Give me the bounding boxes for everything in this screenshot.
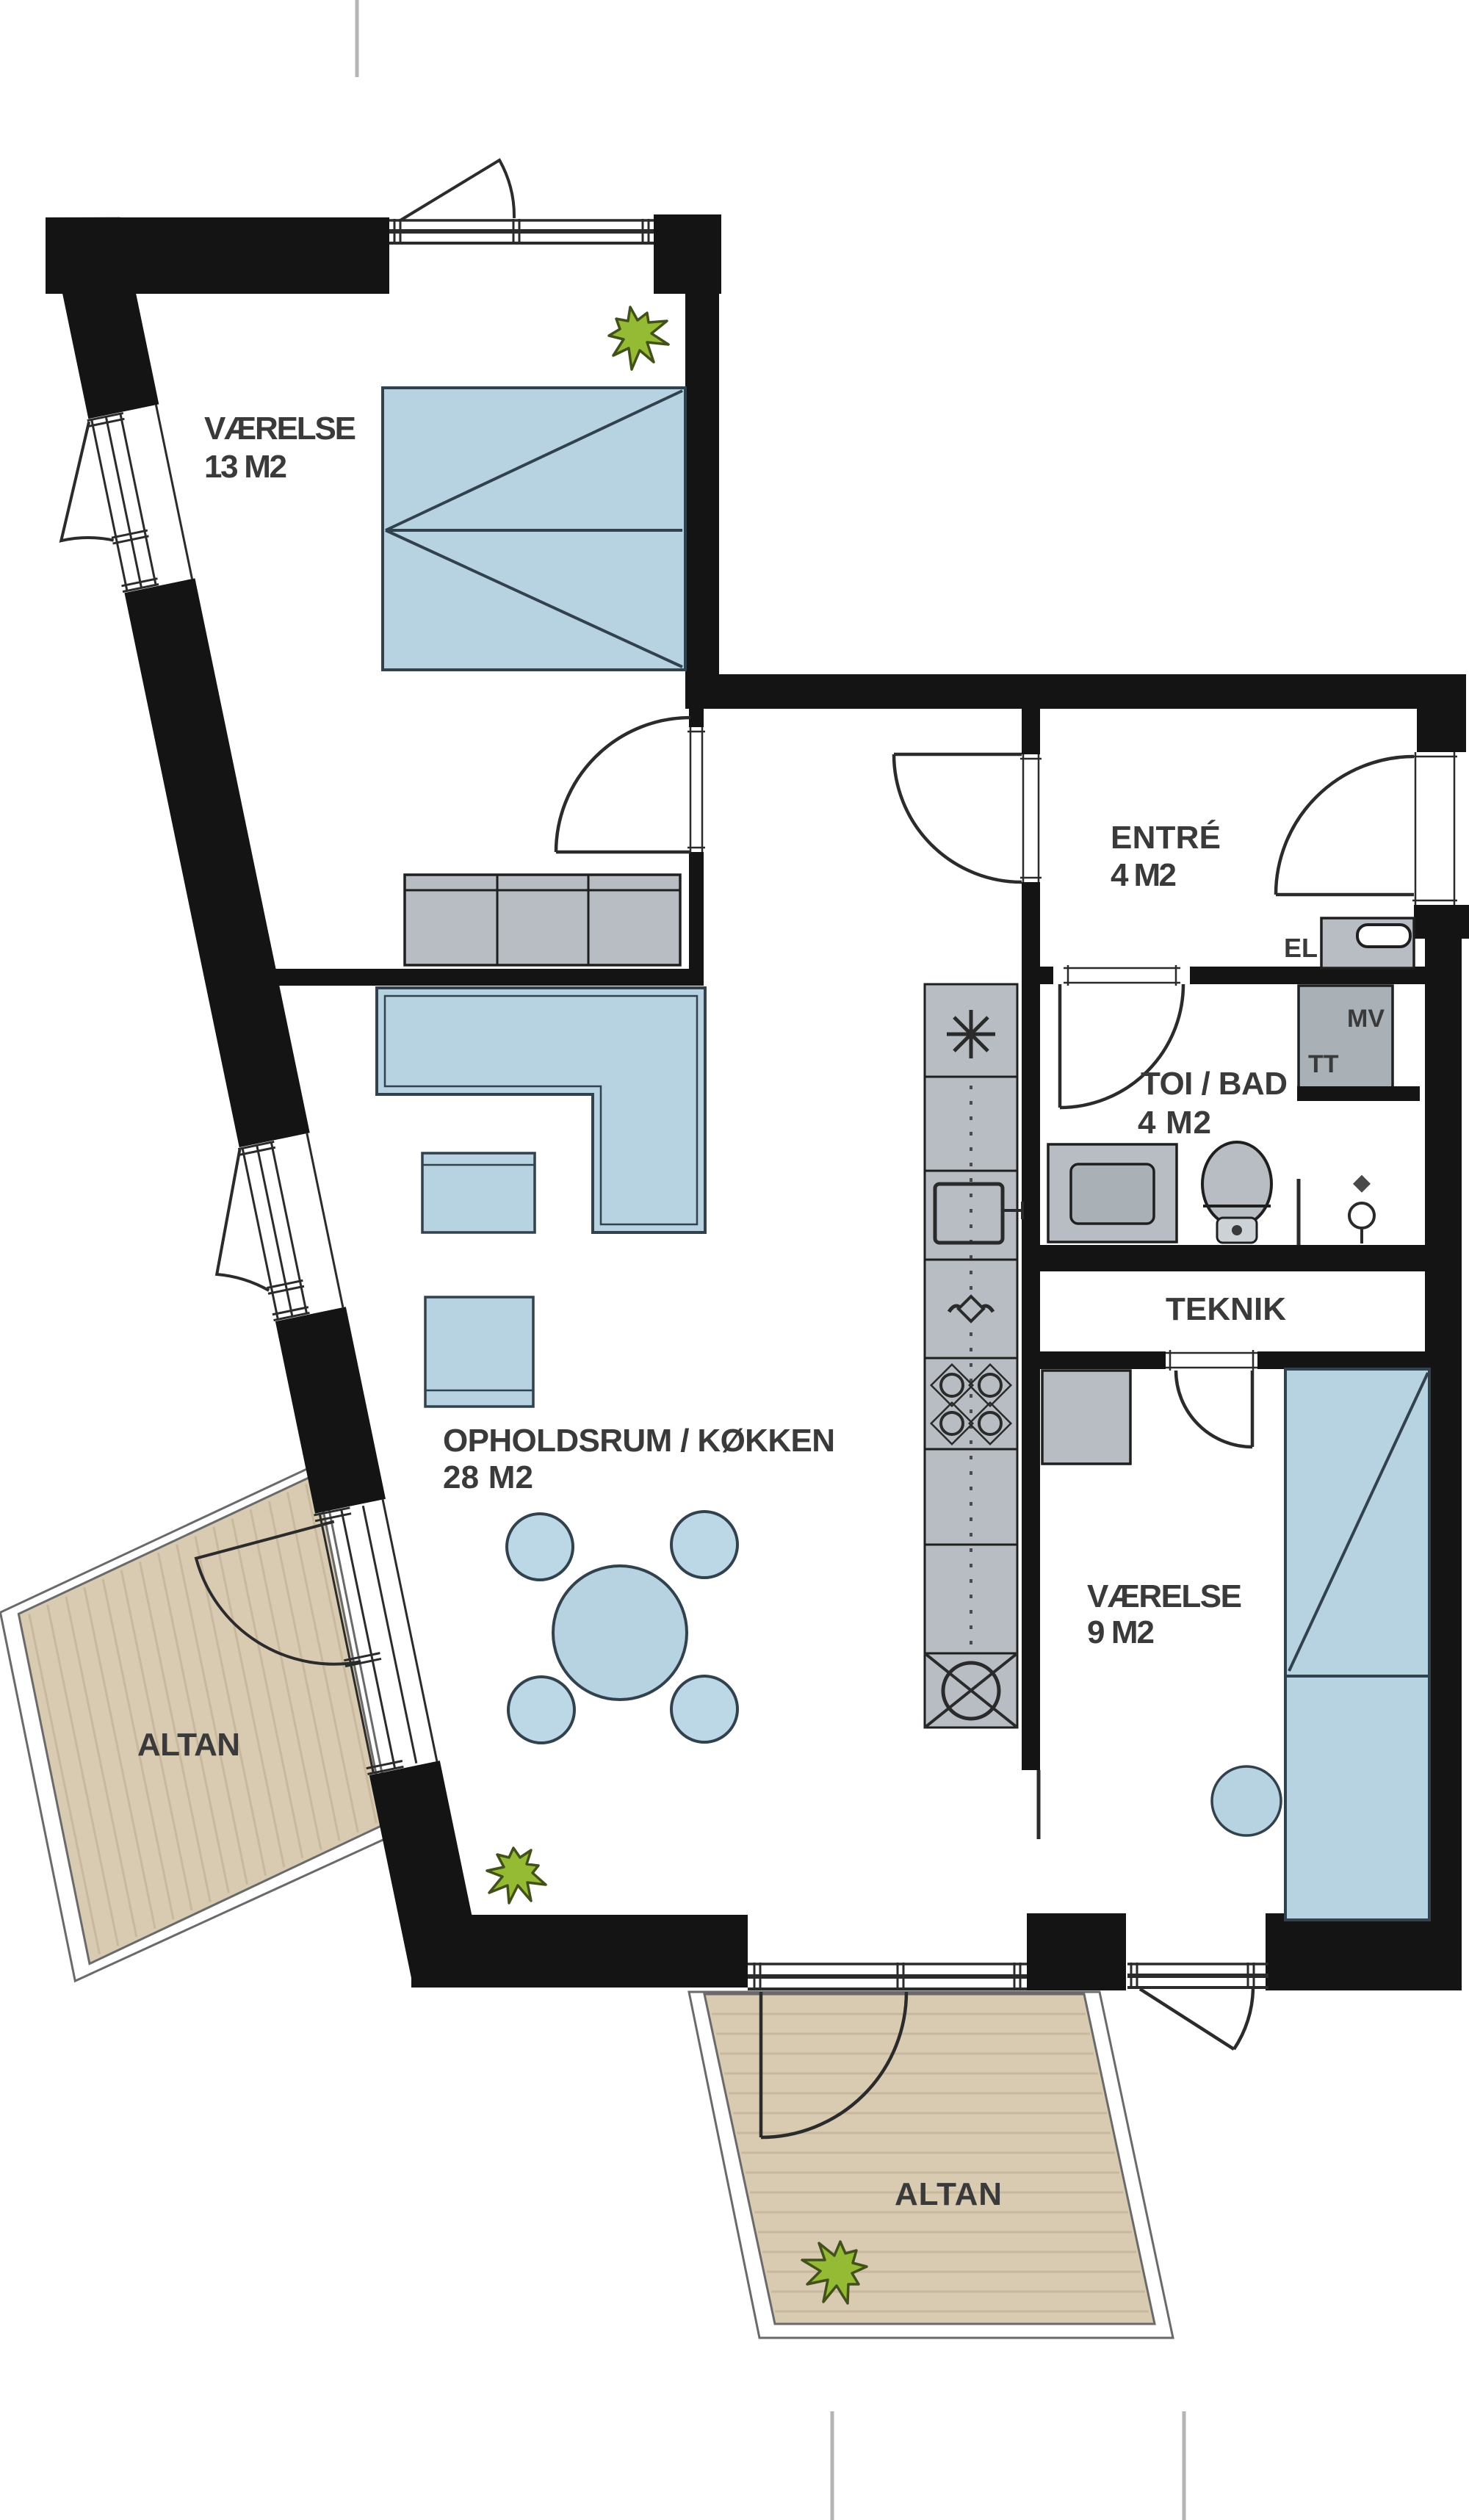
svg-text:ENTRÉ: ENTRÉ — [1111, 819, 1221, 856]
svg-text:TEKNIK: TEKNIK — [1166, 1291, 1286, 1327]
svg-text:4 M2: 4 M2 — [1111, 857, 1177, 893]
svg-text:28 M2: 28 M2 — [443, 1459, 533, 1495]
svg-text:VÆRELSE: VÆRELSE — [204, 411, 356, 447]
svg-text:9 M2: 9 M2 — [1087, 1614, 1155, 1650]
svg-text:VÆRELSE: VÆRELSE — [1087, 1578, 1242, 1614]
svg-text:4 M2: 4 M2 — [1138, 1105, 1211, 1141]
svg-text:ALTAN: ALTAN — [137, 1727, 240, 1763]
svg-text:ALTAN: ALTAN — [895, 2176, 1002, 2212]
svg-text:TT: TT — [1308, 1050, 1339, 1078]
svg-text:EL: EL — [1284, 933, 1318, 963]
svg-text:MV: MV — [1347, 1005, 1385, 1033]
svg-text:OPHOLDSRUM / KØKKEN: OPHOLDSRUM / KØKKEN — [443, 1423, 835, 1459]
svg-text:TOI / BAD: TOI / BAD — [1141, 1066, 1288, 1102]
svg-text:13 M2: 13 M2 — [204, 449, 287, 485]
